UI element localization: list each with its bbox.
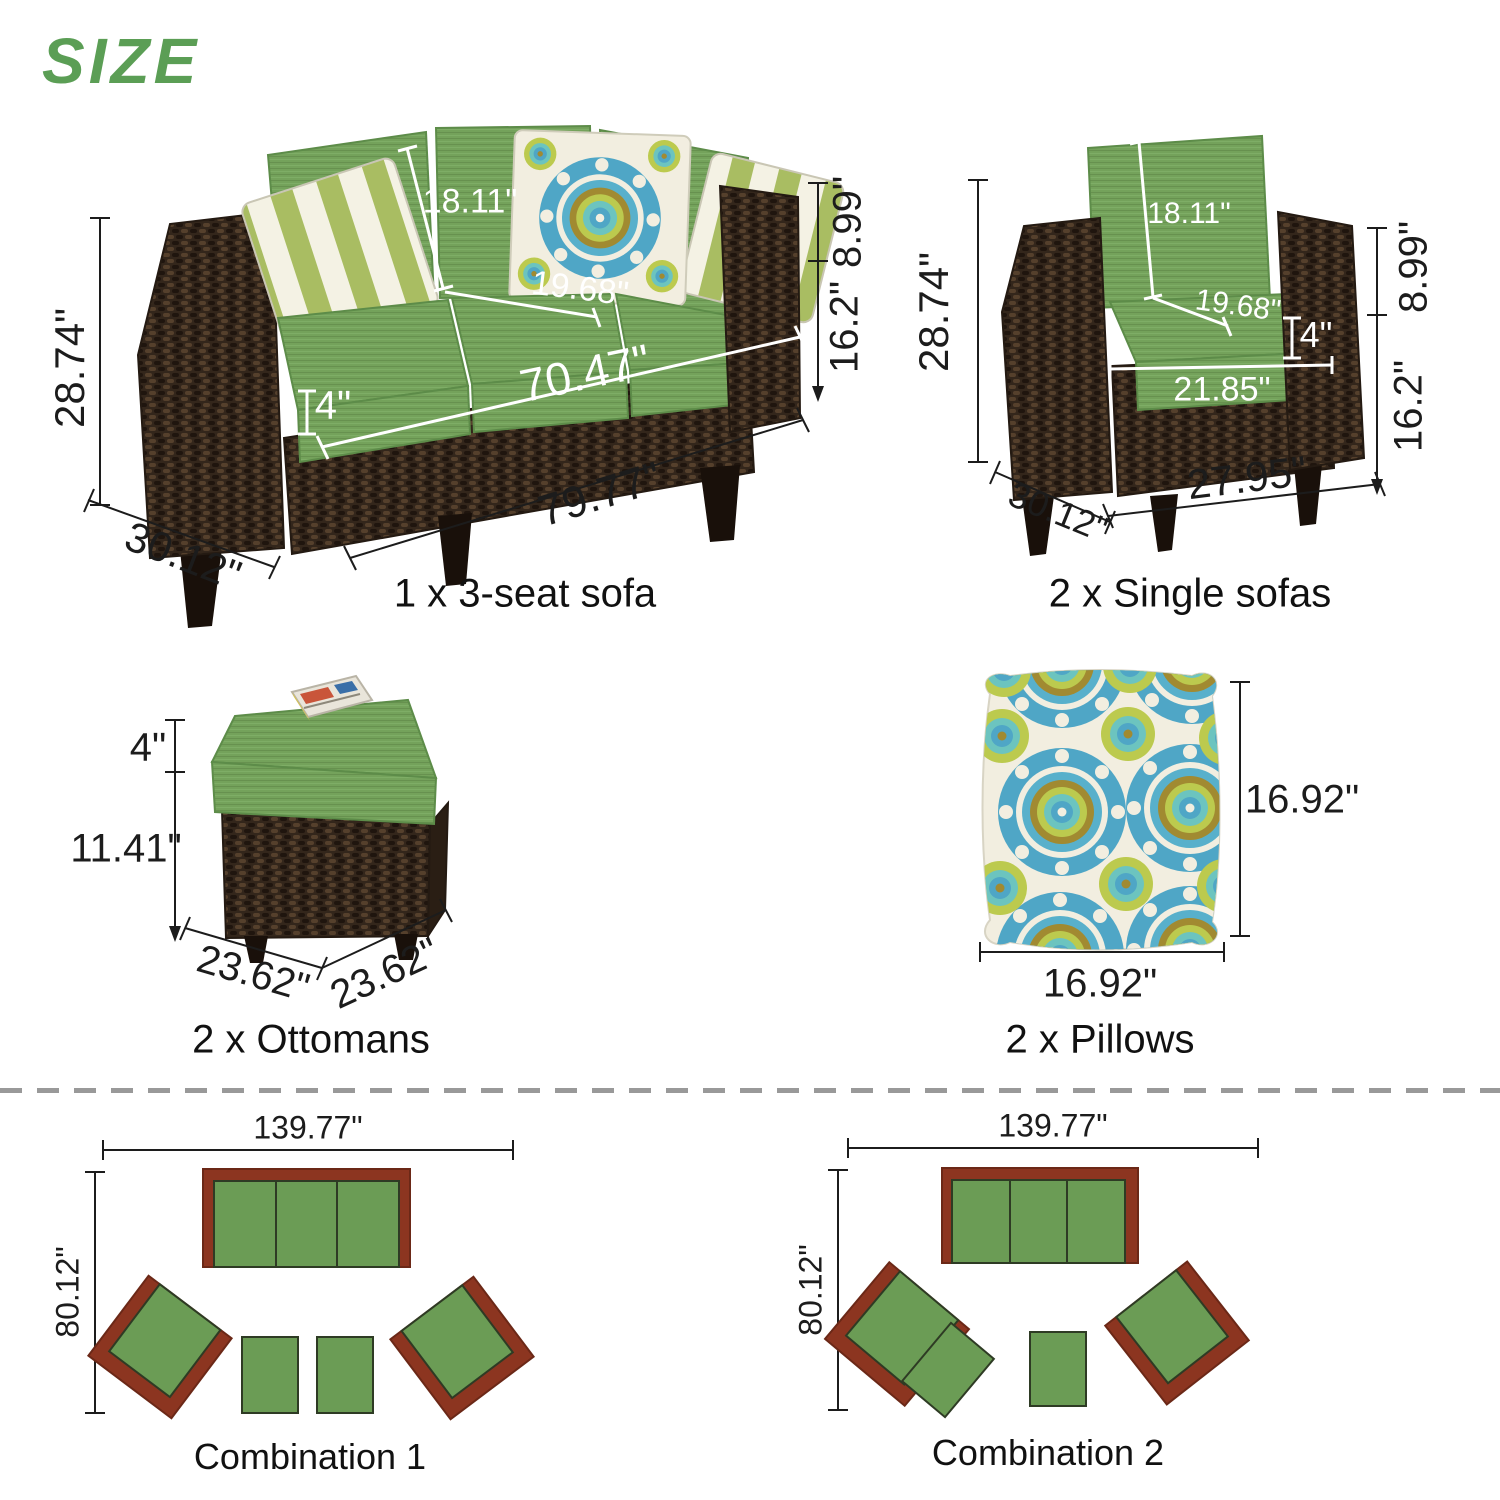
combination2-depth-label: 80.12"	[793, 1244, 830, 1335]
combination1-depth-label: 80.12"	[50, 1246, 87, 1337]
combo2-center-ottoman	[1030, 1332, 1086, 1406]
combo1-ottoman-1	[242, 1337, 298, 1413]
combo1-ottoman-2	[317, 1337, 373, 1413]
sofa3-back-height-label: 8.99"	[826, 176, 871, 268]
single-seat-height-label: 16.2"	[1387, 360, 1432, 452]
single-product-label: 2 x Single sofas	[1049, 572, 1331, 617]
combination1-diagram	[85, 1140, 534, 1419]
combination1-label: Combination 1	[194, 1436, 426, 1478]
pillow-product-label: 2 x Pillows	[1006, 1018, 1195, 1063]
single-back-cushion-height-label: 18.11"	[1147, 197, 1231, 231]
pillow-pattern	[973, 596, 1256, 1020]
sofa3-product-label: 1 x 3-seat sofa	[394, 572, 656, 617]
combination2-label: Combination 2	[932, 1432, 1164, 1474]
ottoman-base-height-label: 11.41"	[70, 827, 181, 872]
single-cushion-thickness-label: 4"	[1300, 314, 1333, 356]
sofa3-back-cushion-height-label: 18.11"	[423, 183, 518, 222]
ottoman-base-front	[222, 810, 430, 938]
chair-left-arm	[1002, 218, 1112, 500]
single-back-height-label: 8.99"	[1392, 221, 1437, 313]
combo2-sofa-cushions	[952, 1180, 1125, 1263]
sofa-right-arm	[720, 186, 800, 432]
ottoman-illustration	[212, 676, 448, 963]
combo1-left-chair	[88, 1276, 231, 1418]
single-overall-height-label: 28.74"	[910, 252, 958, 372]
sofa3-seat-height-label: 16.2"	[823, 281, 868, 373]
combo1-right-chair	[390, 1277, 533, 1419]
chair-leg-middle	[1150, 494, 1178, 552]
sofa-leg-right	[700, 465, 740, 542]
combination2-diagram	[825, 1138, 1258, 1417]
combo2-right-chair	[1105, 1262, 1249, 1405]
pillow-width-label: 16.92"	[1043, 962, 1157, 1007]
pillow-illustration	[973, 596, 1256, 1020]
combination2-width-label: 139.77"	[998, 1108, 1107, 1145]
pillow-height-label: 16.92"	[1245, 778, 1359, 823]
sofa3-overall-height-label: 28.74"	[46, 308, 94, 428]
single-seat-width-label: 21.85"	[1173, 371, 1270, 410]
section-divider-dashed	[0, 1088, 1500, 1093]
size-infographic: SIZE 18.11" 19.68" 70.47" 4" 28.74" 30.1…	[0, 0, 1500, 1500]
sofa3-cushion-thickness-label: 4"	[315, 384, 351, 429]
combo1-sofa-cushions	[214, 1181, 399, 1267]
ottoman-cushion-thickness-label: 4"	[130, 726, 166, 771]
page-title: SIZE	[42, 24, 200, 98]
combination1-width-label: 139.77"	[253, 1110, 362, 1147]
ottoman-product-label: 2 x Ottomans	[192, 1018, 430, 1063]
furniture-illustrations-canvas	[0, 0, 1500, 1500]
